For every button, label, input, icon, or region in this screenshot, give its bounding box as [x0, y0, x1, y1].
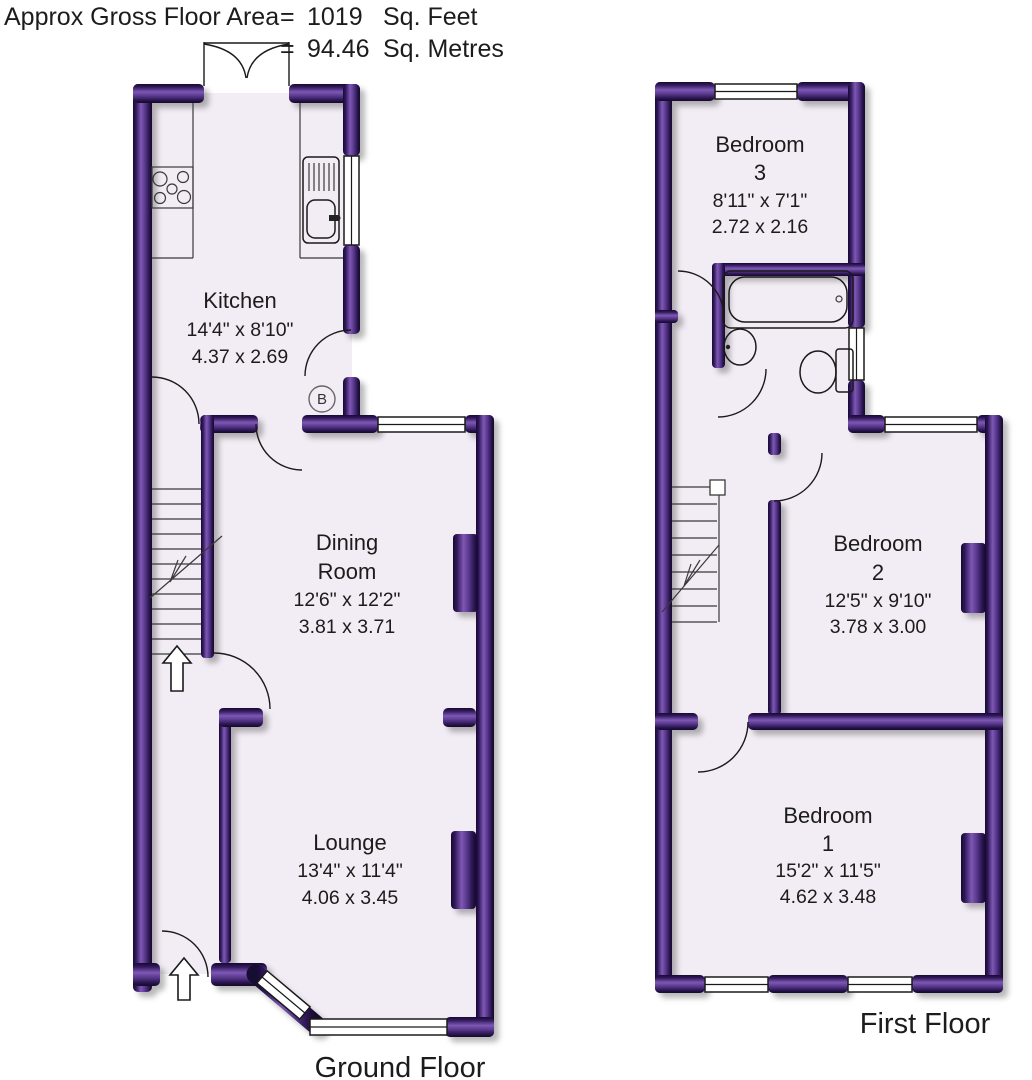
lounge-dims-imperial: 13'4" x 11'4": [297, 860, 403, 882]
chimney-breast: [961, 833, 986, 903]
bedroom1-dims-imperial: 15'2" x 11'5": [775, 860, 881, 882]
bedroom1-dims-metric: 4.62 x 3.48: [780, 886, 877, 908]
kitchen-window: [344, 156, 359, 245]
area-header: Approx Gross Floor Area = 1019 Sq. Feet …: [4, 3, 504, 63]
lounge-dims-metric: 4.06 x 3.45: [302, 887, 399, 909]
area-sqft-value: 1019: [307, 3, 363, 31]
svg-text:B: B: [317, 391, 327, 408]
bedroom2-label: Bedroom: [833, 531, 922, 556]
bedroom3-label: Bedroom: [715, 132, 804, 157]
first-floor-plan: Bedroom 3 8'11" x 7'1" 2.72 x 2.16 Bedro…: [655, 82, 1003, 1040]
dining-dims-metric: 3.81 x 3.71: [299, 616, 396, 638]
floor-plan-canvas: Approx Gross Floor Area = 1019 Sq. Feet …: [0, 0, 1032, 1080]
chimney-breast: [451, 831, 476, 909]
area-sqft-unit: Sq. Feet: [383, 3, 478, 31]
bedroom3-number: 3: [754, 160, 766, 185]
dining-room-label: Dining: [316, 530, 378, 555]
first-floor-title: First Floor: [860, 1008, 991, 1040]
bay-window-front: [310, 1019, 447, 1035]
bedroom2-dims-metric: 3.78 x 3.00: [830, 616, 927, 638]
ground-floor-title: Ground Floor: [315, 1052, 486, 1080]
area-label: Approx Gross Floor Area: [4, 3, 279, 31]
bedroom3-dims-imperial: 8'11" x 7'1": [713, 190, 808, 212]
bedroom2-window: [885, 417, 977, 432]
dining-dims-imperial: 12'6" x 12'2": [294, 589, 401, 611]
bedroom3-dims-metric: 2.72 x 2.16: [712, 216, 809, 238]
kitchen-label: Kitchen: [203, 288, 276, 313]
dining-room-window: [378, 417, 465, 432]
chimney-breast: [453, 534, 478, 612]
bedroom1-window-right: [848, 977, 912, 992]
lounge-label: Lounge: [313, 830, 386, 855]
bathroom-window: [849, 328, 864, 380]
area-sqm-unit: Sq. Metres: [383, 35, 504, 63]
bedroom2-number: 2: [872, 560, 884, 585]
newel-post: [710, 480, 725, 495]
bedroom3-window: [715, 84, 797, 99]
bedroom2-dims-imperial: 12'5" x 9'10": [825, 590, 932, 612]
area-sqm-value: 94.46: [307, 35, 370, 63]
bedroom1-label: Bedroom: [783, 803, 872, 828]
equals-sign: =: [280, 3, 295, 31]
ground-floor-plan: B Kitchen 14'4" x 8'10" 4.37 x 2.69 Dini…: [133, 42, 494, 1080]
kitchen-dims-metric: 4.37 x 2.69: [192, 346, 289, 368]
floor-plan-page: Approx Gross Floor Area = 1019 Sq. Feet …: [0, 0, 1032, 1080]
bedroom1-number: 1: [822, 831, 834, 856]
equals-sign: =: [280, 35, 295, 63]
bedroom1-window-left: [705, 977, 768, 992]
chimney-breast: [961, 543, 986, 613]
french-doors: [204, 42, 289, 86]
dining-room-label-line2: Room: [318, 559, 377, 584]
kitchen-dims-imperial: 14'4" x 8'10": [187, 319, 294, 341]
